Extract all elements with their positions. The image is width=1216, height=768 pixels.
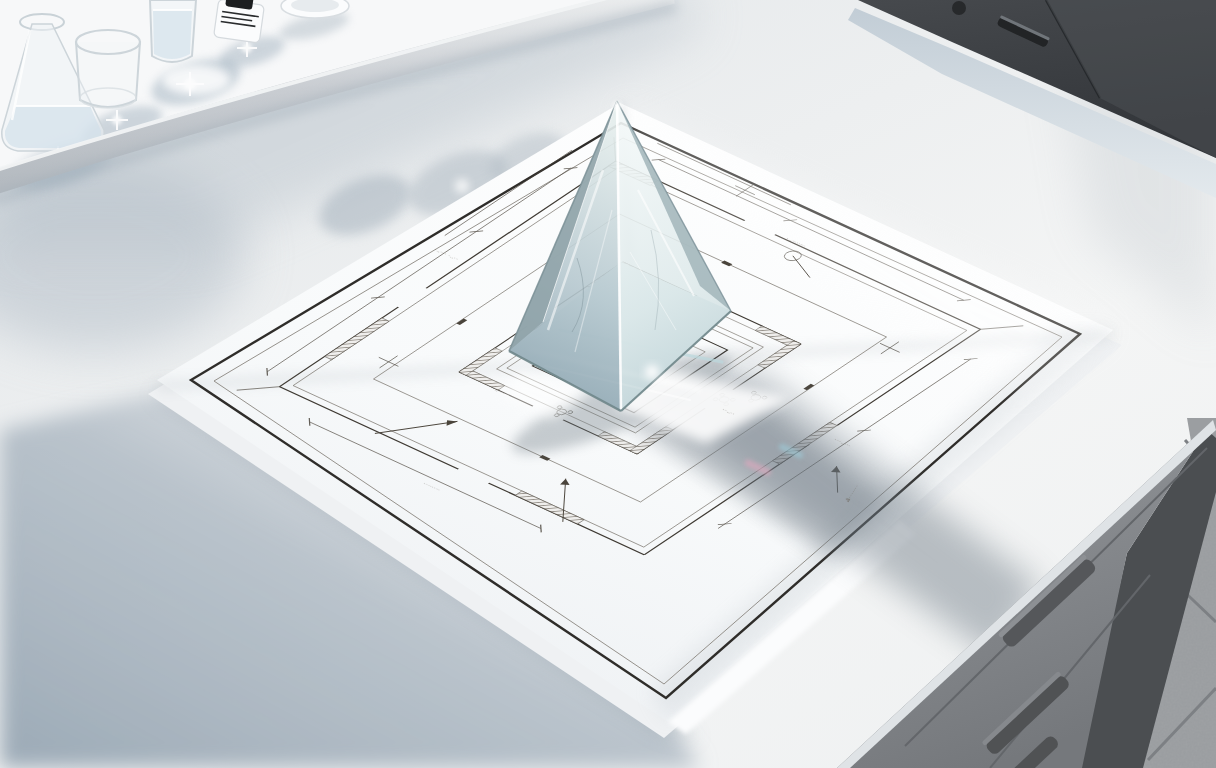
scene-canvas [0, 0, 1216, 768]
base-glint [645, 365, 659, 379]
apex-glint [613, 102, 621, 110]
scene-laboratory-counter: ·‥··· ·‥·· ·‥···⋯· ········ Δ······· ··‥… [0, 0, 1216, 768]
glass-water [153, 10, 192, 59]
caustic-glint [455, 179, 469, 193]
cabinet-knob [952, 1, 966, 15]
white-dish [281, 0, 349, 18]
tall-water-glass [150, 0, 196, 62]
reagent-bottle [214, 0, 265, 43]
cabinet-top-right [848, 0, 1216, 198]
